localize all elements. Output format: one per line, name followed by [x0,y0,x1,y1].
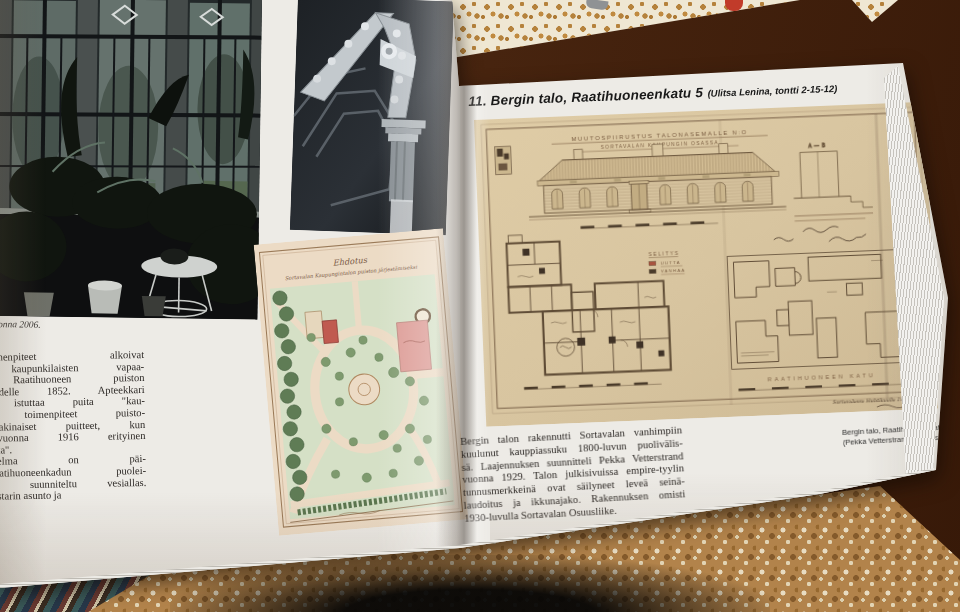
figure-caption: Bergin talo, Raatihuoneenkatu 5 (Pekka V… [842,421,960,448]
photo-caption: onna 2006. [0,319,118,331]
section-label: A — B [808,142,826,148]
right-page-text: Bergin talon rakennutti Sortavalan vanhi… [460,424,686,525]
park-plan-figure: Ehdotus Sortavalan Kaupungintalon puisto… [254,228,469,535]
facade-detail-photo [290,0,454,235]
winter-garden-photo [0,0,262,320]
heading-subtitle: (Ulitsa Lenina, tontti 2-15-12) [707,83,837,99]
open-book: onna 2006. aunistamistoimenpiteet alkoiv… [0,0,960,612]
left-page-text: aunistamistoimenpiteet alkoivat sityiste… [0,349,147,503]
legend-old-label: VANHAA [661,268,686,274]
photo-scene: onna 2006. aunistamistoimenpiteet alkoiv… [0,0,960,612]
architectural-drawing-figure: MUUTOSPIIRUSTUS TALONASEMALLE N:O SORTAV… [474,102,938,427]
text-line: sivat vahtimestarin asunto ja [0,488,147,503]
heading-title: 11. Bergin talo, Raatihuoneenkatu 5 [468,85,703,109]
photo-caption-text: onna 2006. [0,319,41,330]
town-hall-building [397,320,432,372]
red-building [322,320,338,344]
key-map-stamp [495,146,512,174]
legend-new-label: UUTTA [661,260,681,266]
